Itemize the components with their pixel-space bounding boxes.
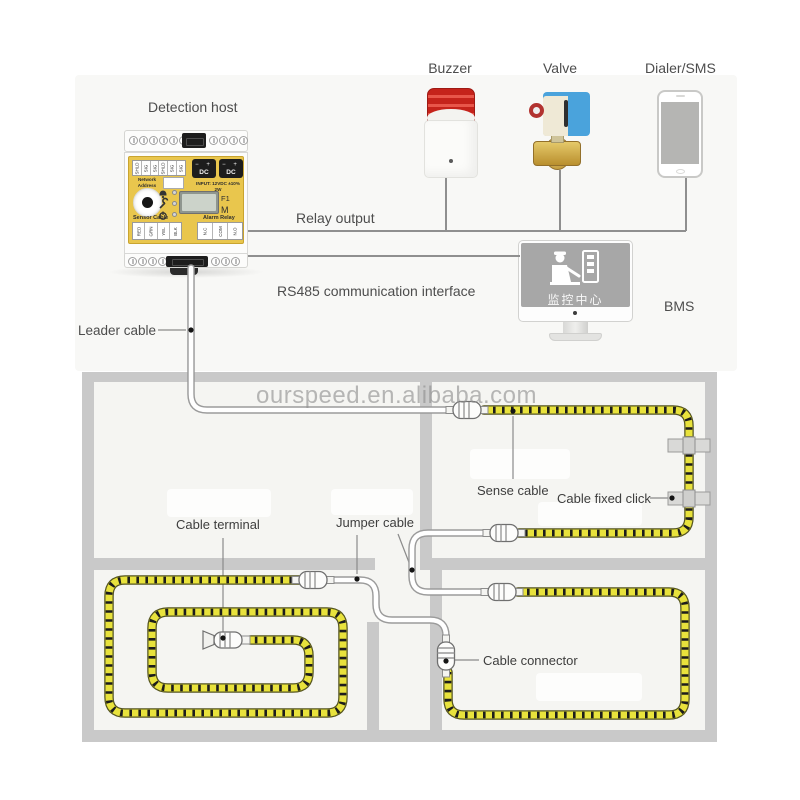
- sense-cable-label: Sense cable: [477, 483, 549, 498]
- cable-connector-label: Cable connector: [483, 653, 578, 668]
- jumper-cable-label: Jumper cable: [336, 515, 414, 530]
- relay-and-rs485-lines: [248, 170, 686, 256]
- sense-cable-top-right-loop: [484, 410, 689, 533]
- cable-terminal-graphic: [203, 631, 250, 649]
- watermark: ourspeed.en.alibaba.com: [256, 382, 537, 410]
- cable-terminal-label: Cable terminal: [176, 517, 260, 532]
- jumper-cable-path-1: [412, 533, 490, 592]
- cable-connectors: [292, 402, 525, 678]
- cable-connector-graphic: [481, 584, 523, 601]
- leak-detection-system-diagram: SHLDSIGSIGSHLDSIGSIG Network Address − +…: [0, 0, 800, 800]
- cable-fixed-click-label: Cable fixed click: [557, 491, 651, 506]
- cable-connector-graphic: [483, 525, 525, 542]
- cable-connector-graphic: [292, 572, 334, 589]
